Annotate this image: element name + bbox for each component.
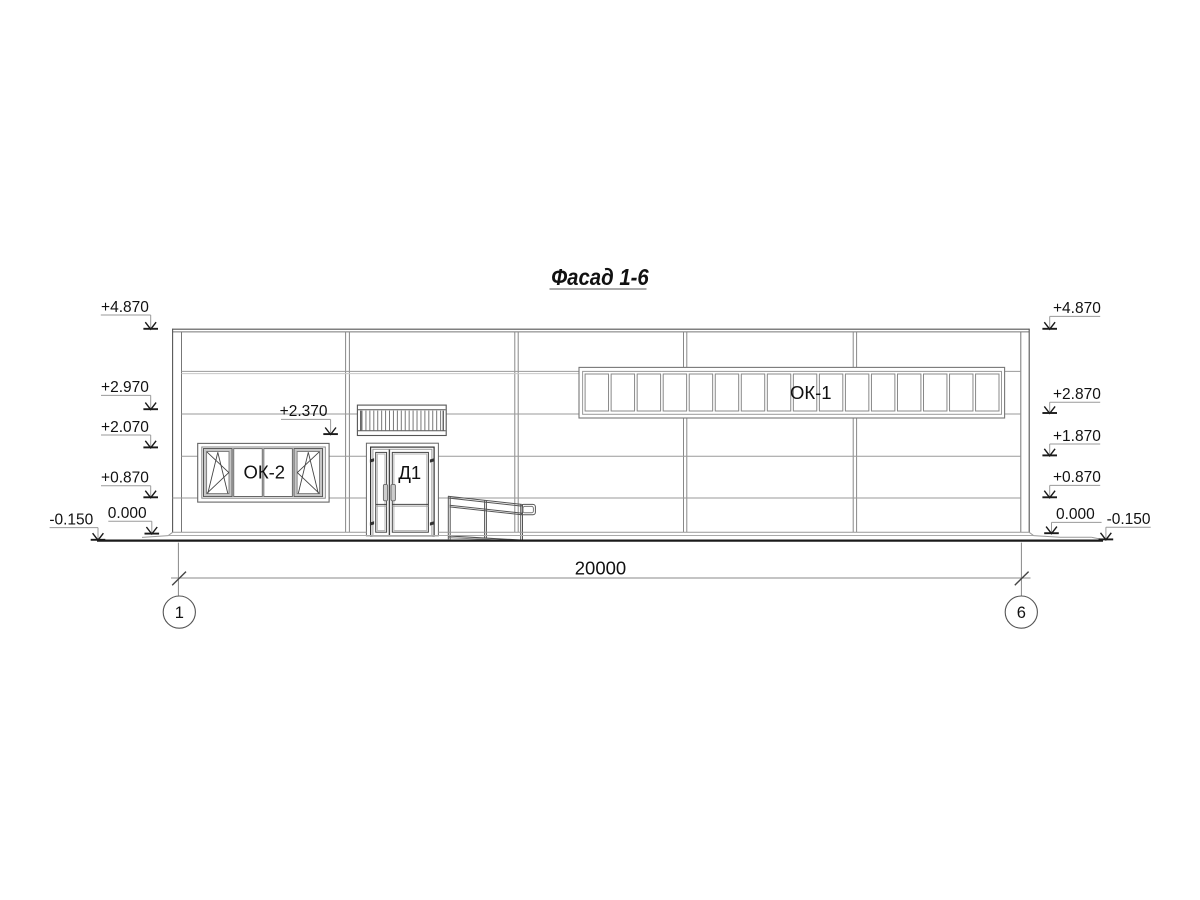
svg-text:Фасад 1-6: Фасад 1-6 (551, 264, 649, 290)
svg-text:-0.150: -0.150 (49, 511, 93, 528)
svg-text:6: 6 (1017, 604, 1026, 622)
svg-text:1: 1 (175, 604, 184, 622)
svg-text:+4.870: +4.870 (101, 299, 149, 316)
svg-text:ОК-1: ОК-1 (790, 382, 832, 403)
svg-text:-0.150: -0.150 (1107, 511, 1151, 528)
svg-text:+2.370: +2.370 (280, 403, 328, 420)
svg-text:+1.870: +1.870 (1053, 428, 1101, 445)
svg-text:+2.970: +2.970 (101, 379, 149, 396)
svg-text:+0.870: +0.870 (101, 470, 149, 487)
svg-text:+2.070: +2.070 (101, 419, 149, 436)
svg-text:0.000: 0.000 (1056, 506, 1095, 523)
svg-text:+4.870: +4.870 (1053, 300, 1101, 317)
svg-text:0.000: 0.000 (108, 505, 147, 522)
svg-text:+2.870: +2.870 (1053, 386, 1101, 403)
svg-text:Д1: Д1 (398, 462, 421, 483)
svg-text:+0.870: +0.870 (1053, 469, 1101, 486)
svg-text:ОК-2: ОК-2 (243, 462, 285, 483)
svg-text:20000: 20000 (575, 557, 626, 578)
